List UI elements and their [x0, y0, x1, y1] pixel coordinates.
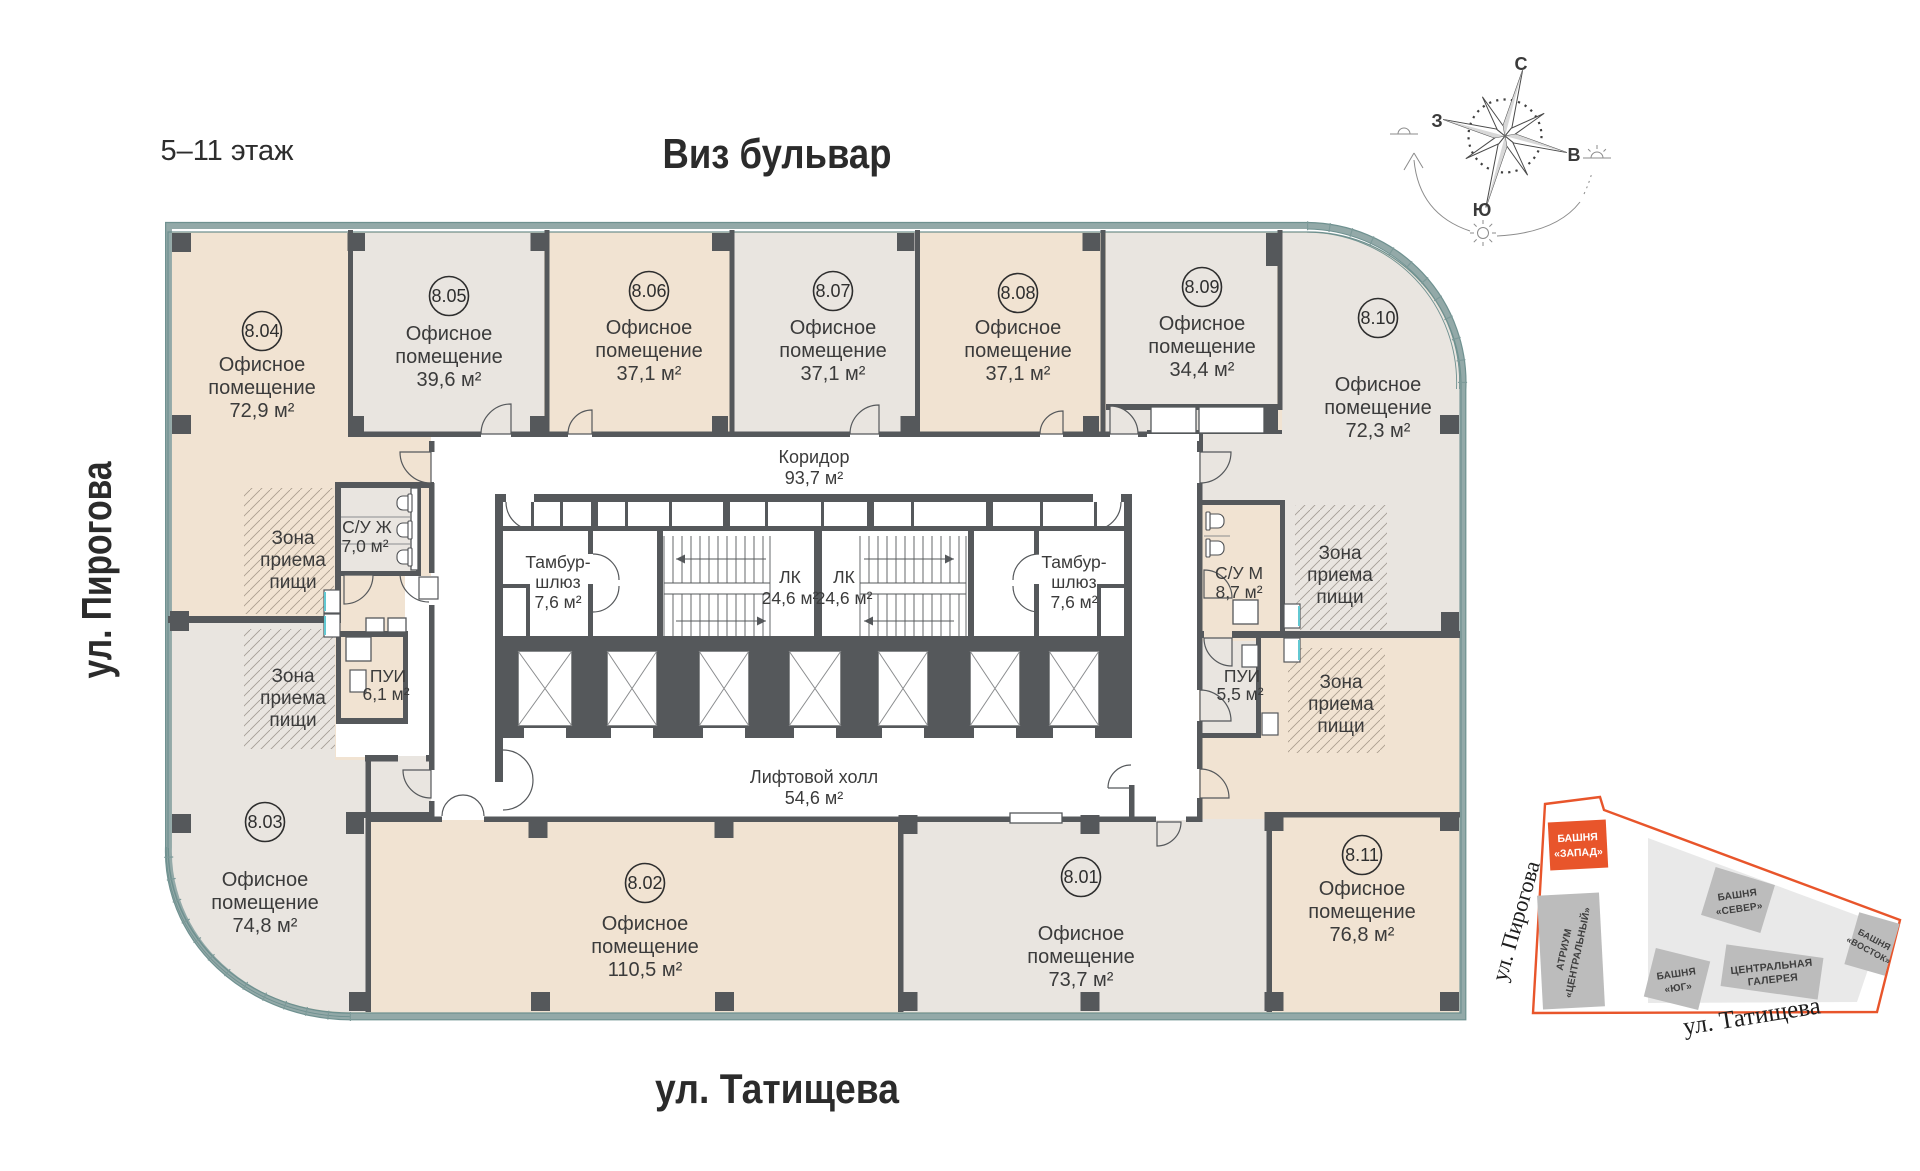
svg-text:ул. Пирогова: ул. Пирогова — [73, 461, 120, 679]
svg-text:пищи: пищи — [1316, 587, 1363, 608]
svg-text:БАШНЯ: БАШНЯ — [1557, 831, 1598, 845]
svg-text:приема: приема — [1308, 694, 1374, 715]
svg-text:8.05: 8.05 — [431, 286, 466, 306]
svg-text:8.07: 8.07 — [815, 281, 850, 301]
svg-text:Офисное: Офисное — [602, 913, 688, 935]
svg-text:Тамбур-: Тамбур- — [525, 552, 590, 572]
svg-text:помещение: помещение — [1308, 901, 1416, 923]
svg-text:шлюз: шлюз — [535, 572, 580, 592]
svg-text:7,0 м²: 7,0 м² — [341, 536, 388, 556]
svg-text:8.11: 8.11 — [1345, 845, 1379, 865]
svg-text:приема: приема — [260, 688, 326, 709]
svg-text:37,1 м²: 37,1 м² — [617, 363, 682, 385]
svg-text:7,6 м²: 7,6 м² — [534, 592, 581, 612]
svg-text:приема: приема — [260, 550, 326, 571]
svg-text:72,9 м²: 72,9 м² — [230, 400, 295, 422]
svg-text:ЛК: ЛК — [779, 567, 801, 587]
svg-text:С/У М: С/У М — [1215, 563, 1263, 583]
svg-text:Зона: Зона — [271, 528, 315, 549]
svg-text:72,3 м²: 72,3 м² — [1346, 420, 1411, 442]
svg-text:«ЗАПАД»: «ЗАПАД» — [1554, 846, 1603, 861]
svg-text:ПУИ: ПУИ — [370, 666, 406, 686]
svg-text:Тамбур-: Тамбур- — [1041, 552, 1106, 572]
svg-text:5–11 этаж: 5–11 этаж — [160, 135, 294, 167]
svg-text:Офисное: Офисное — [219, 354, 305, 376]
svg-text:ЛК: ЛК — [833, 567, 855, 587]
svg-text:помещение: помещение — [395, 346, 503, 368]
svg-text:Коридор: Коридор — [778, 447, 849, 467]
svg-text:Офисное: Офисное — [1159, 313, 1245, 335]
svg-text:8.04: 8.04 — [244, 321, 279, 341]
svg-text:6,1 м²: 6,1 м² — [362, 684, 409, 704]
svg-text:8.06: 8.06 — [631, 281, 666, 301]
svg-text:Офисное: Офисное — [406, 323, 492, 345]
svg-text:Лифтовой холл: Лифтовой холл — [750, 767, 878, 787]
svg-text:ПУИ: ПУИ — [1224, 666, 1260, 686]
svg-text:помещение: помещение — [1324, 397, 1432, 419]
svg-text:приема: приема — [1307, 565, 1373, 586]
svg-text:34,4 м²: 34,4 м² — [1170, 359, 1235, 381]
svg-text:37,1 м²: 37,1 м² — [801, 363, 866, 385]
svg-text:шлюз: шлюз — [1051, 572, 1096, 592]
svg-text:помещение: помещение — [964, 340, 1072, 362]
svg-text:С/У Ж: С/У Ж — [342, 517, 392, 537]
svg-text:Офисное: Офисное — [1319, 878, 1405, 900]
svg-text:В: В — [1568, 145, 1581, 165]
svg-text:помещение: помещение — [595, 340, 703, 362]
svg-text:8,7 м²: 8,7 м² — [1215, 582, 1262, 602]
svg-text:помещение: помещение — [1148, 336, 1256, 358]
svg-text:8.03: 8.03 — [247, 812, 282, 832]
svg-text:пищи: пищи — [269, 572, 316, 593]
svg-text:Офисное: Офисное — [222, 869, 308, 891]
svg-text:Офисное: Офисное — [975, 317, 1061, 339]
svg-text:Зона: Зона — [1319, 672, 1363, 693]
svg-text:8.01: 8.01 — [1063, 867, 1098, 887]
svg-text:Офисное: Офисное — [1335, 374, 1421, 396]
svg-text:пищи: пищи — [269, 710, 316, 731]
svg-text:74,8 м²: 74,8 м² — [233, 915, 298, 937]
svg-text:37,1 м²: 37,1 м² — [986, 363, 1051, 385]
svg-text:пищи: пищи — [1317, 716, 1364, 737]
svg-text:8.08: 8.08 — [1000, 283, 1035, 303]
svg-text:помещение: помещение — [208, 377, 316, 399]
svg-text:39,6 м²: 39,6 м² — [417, 369, 482, 391]
svg-text:Зона: Зона — [1318, 543, 1362, 564]
svg-text:помещение: помещение — [779, 340, 887, 362]
svg-text:Ю: Ю — [1473, 200, 1492, 220]
svg-text:С: С — [1515, 54, 1528, 74]
svg-text:8.10: 8.10 — [1360, 308, 1395, 328]
svg-text:93,7 м²: 93,7 м² — [785, 468, 843, 488]
svg-text:Офисное: Офисное — [790, 317, 876, 339]
svg-text:8.02: 8.02 — [627, 873, 662, 893]
svg-text:Виз бульвар: Виз бульвар — [663, 130, 892, 177]
svg-text:ул. Татищева: ул. Татищева — [655, 1065, 900, 1112]
svg-text:7,6 м²: 7,6 м² — [1050, 592, 1097, 612]
svg-text:Зона: Зона — [271, 666, 315, 687]
svg-text:5,5 м²: 5,5 м² — [1216, 684, 1263, 704]
svg-text:8.09: 8.09 — [1184, 277, 1219, 297]
svg-text:З: З — [1431, 111, 1442, 131]
svg-text:110,5 м²: 110,5 м² — [608, 959, 683, 981]
svg-text:24,6 м²: 24,6 м² — [816, 588, 873, 608]
svg-text:24,6 м²: 24,6 м² — [762, 588, 819, 608]
svg-text:Офисное: Офисное — [1038, 923, 1124, 945]
svg-text:помещение: помещение — [1027, 946, 1135, 968]
svg-text:73,7 м²: 73,7 м² — [1049, 969, 1114, 991]
svg-text:76,8 м²: 76,8 м² — [1330, 924, 1395, 946]
svg-text:помещение: помещение — [591, 936, 699, 958]
svg-text:54,6 м²: 54,6 м² — [785, 788, 843, 808]
svg-text:помещение: помещение — [211, 892, 319, 914]
svg-text:Офисное: Офисное — [606, 317, 692, 339]
